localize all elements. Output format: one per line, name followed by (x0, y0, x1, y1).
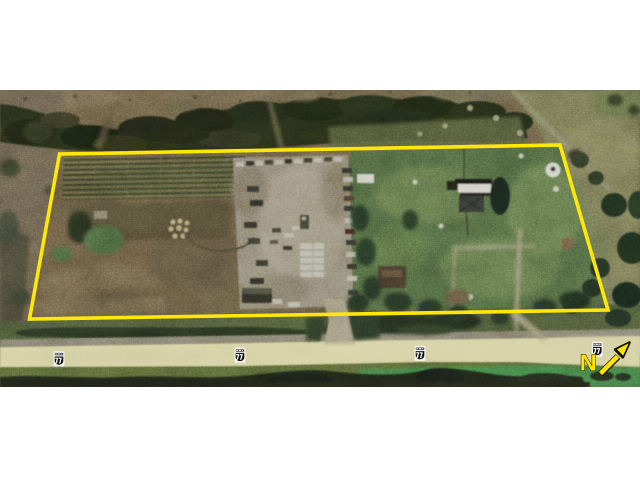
svg-text:N: N (580, 350, 597, 376)
